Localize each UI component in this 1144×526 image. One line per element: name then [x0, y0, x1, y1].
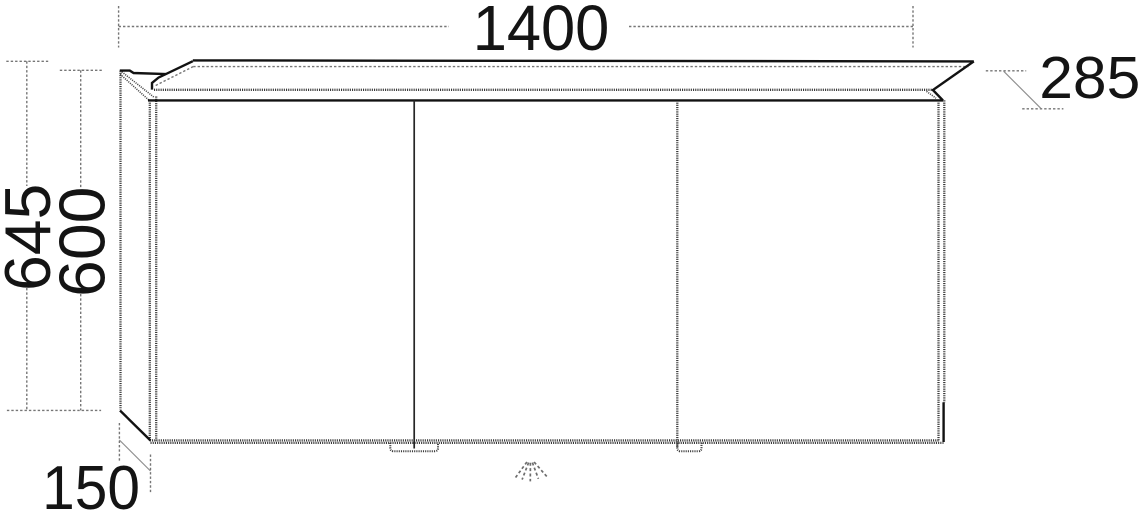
svg-text:285: 285 — [1039, 45, 1140, 111]
svg-text:150: 150 — [42, 452, 140, 522]
svg-text:600: 600 — [46, 187, 118, 297]
svg-text:1400: 1400 — [473, 0, 610, 64]
